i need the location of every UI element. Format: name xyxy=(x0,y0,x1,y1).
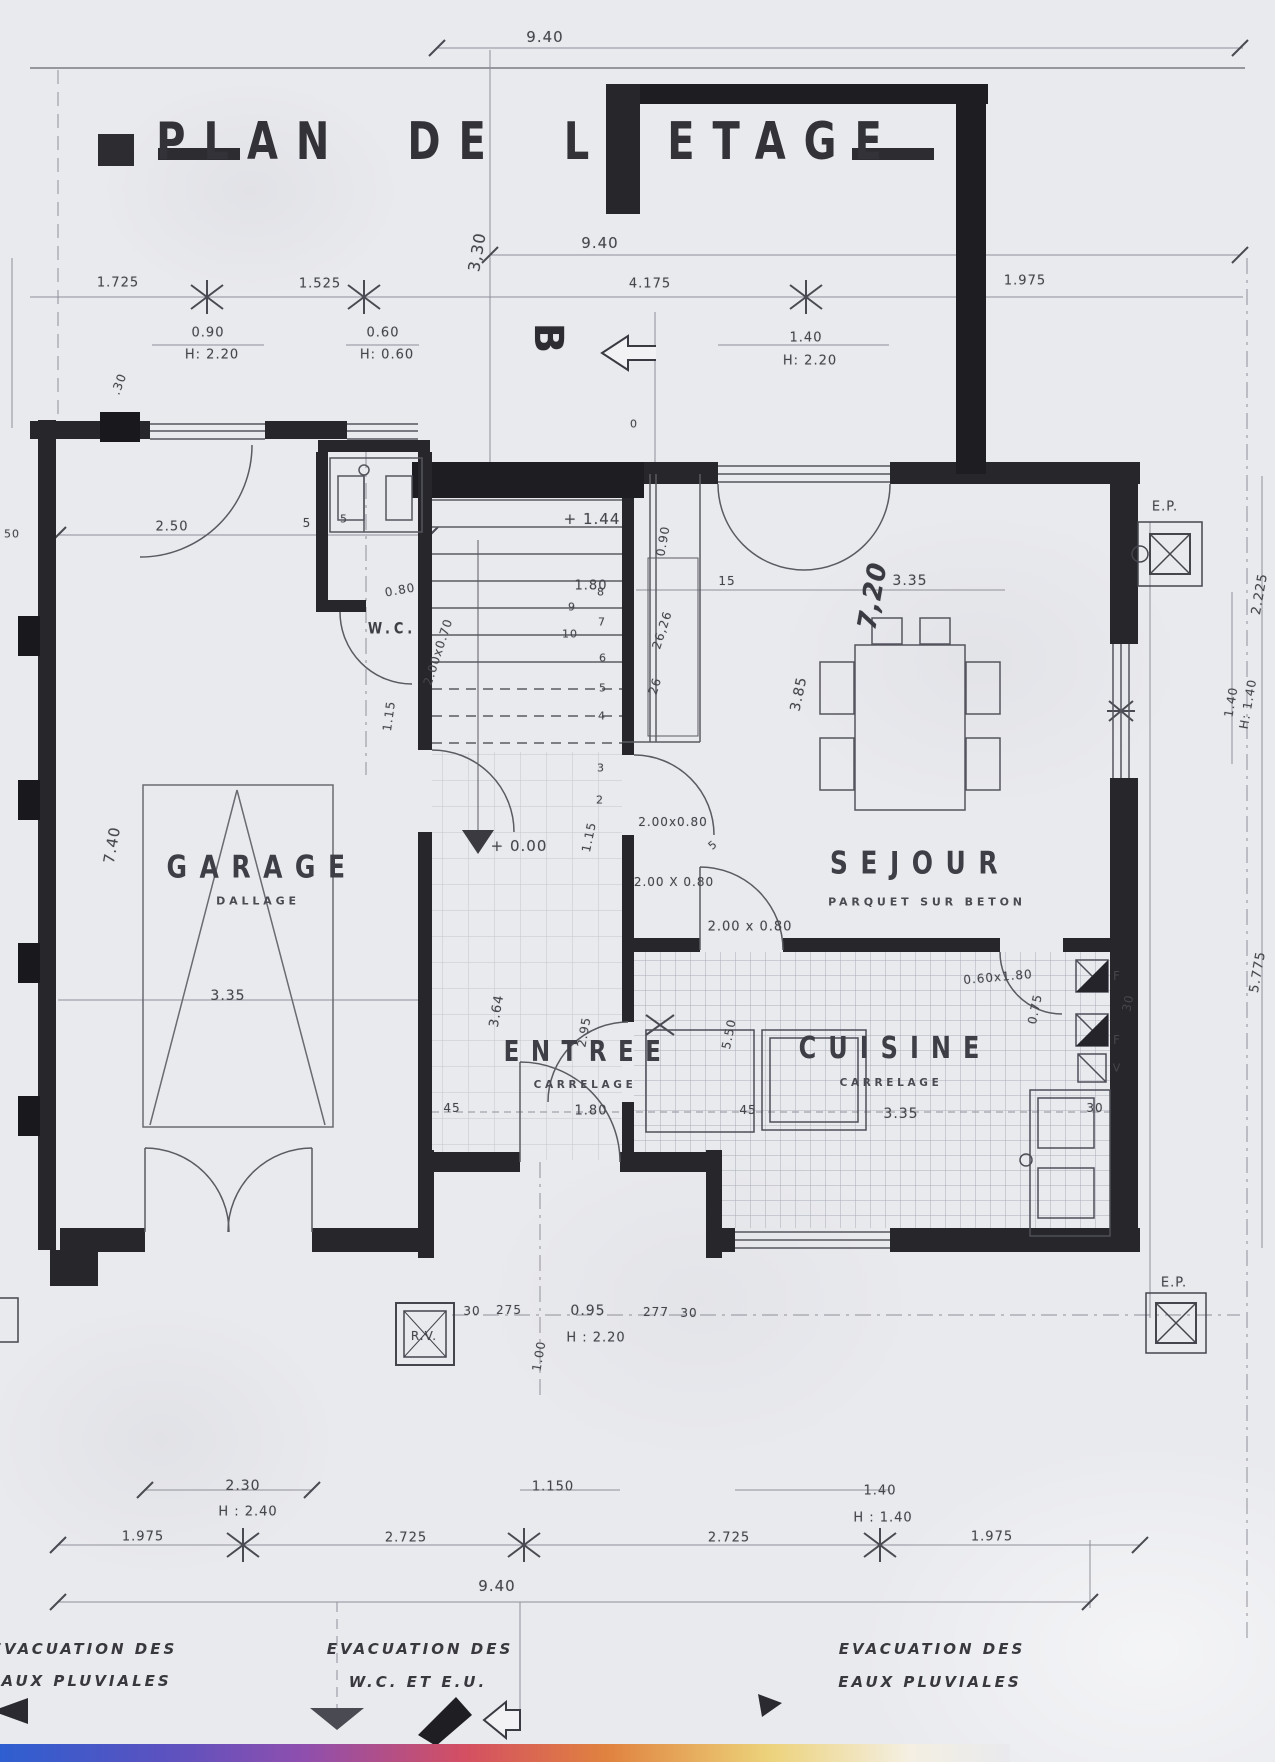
dim-label: 275 xyxy=(496,1303,522,1317)
dim-label: 1.15 xyxy=(579,821,599,854)
dim-label: 1.80 xyxy=(575,1104,608,1119)
dim-label: 1.40 xyxy=(790,331,823,346)
rv-label: R.V. xyxy=(411,1329,437,1343)
dim-label: 9.40 xyxy=(581,234,618,252)
dim-label: 2.00x0.70 xyxy=(421,617,456,687)
dim-label: 0 xyxy=(630,418,638,431)
dim-label: 2.00 X 0.80 xyxy=(634,875,714,889)
dim-label: 2.225 xyxy=(1249,572,1271,616)
dim-label: 30 xyxy=(680,1306,697,1320)
stair-step-number: 4 xyxy=(598,710,606,723)
dim-label: H : 1.40 xyxy=(853,1511,912,1526)
dim-label: 3.64 xyxy=(487,993,507,1028)
dim-label: 3.35 xyxy=(883,1106,918,1122)
dim-label: 1.150 xyxy=(532,1480,574,1495)
dim-label: 26 xyxy=(646,676,665,697)
stair-step-number: 5 xyxy=(599,682,607,695)
rain-outlet-label: E.P. xyxy=(1161,1276,1187,1291)
dim-label: 2.50 xyxy=(156,520,189,535)
flue-marker: F xyxy=(1113,1033,1121,1047)
dim-label: 9.40 xyxy=(478,1577,515,1595)
dim-label: 5 xyxy=(706,837,720,852)
dim-label: 9.40 xyxy=(526,28,563,46)
dim-label: H: 2.20 xyxy=(783,354,837,369)
dim-label: 45 xyxy=(443,1101,460,1115)
dim-label: 1.40 xyxy=(1221,686,1240,719)
dim-label: 4.175 xyxy=(629,277,671,292)
dim-label: 50 xyxy=(4,528,20,541)
dim-label: 26,26 xyxy=(649,609,674,651)
dim-label: 1.525 xyxy=(299,277,341,292)
dim-label: 1.975 xyxy=(122,1530,164,1545)
dim-label: H : 2.40 xyxy=(218,1505,277,1520)
dim-label: 30 xyxy=(1086,1101,1103,1115)
floor-plan-page: PLAN DE L ETAGE GARAGE DALLAGE W.C. ENTR… xyxy=(0,0,1275,1762)
stair-step-number: 2 xyxy=(596,794,604,807)
dim-label: 0.60x1.80 xyxy=(963,967,1034,987)
dim-label: 0.80 xyxy=(384,580,417,599)
stair-step-number: 8 xyxy=(597,586,605,599)
stair-step-number: 7 xyxy=(598,616,606,629)
dim-label: 45 xyxy=(739,1103,756,1117)
dim-label: H : 2.20 xyxy=(566,1331,625,1346)
dim-label: .30 xyxy=(109,371,130,397)
flue-marker: F xyxy=(1113,969,1121,983)
dim-label: 1.40 xyxy=(864,1484,897,1499)
upper-wall-stub xyxy=(606,84,640,214)
dim-label: 2.95 xyxy=(574,1016,593,1049)
stair-step-number: 6 xyxy=(599,652,607,665)
dim-label: 3.85 xyxy=(788,675,811,713)
level-upper: + 1.44 xyxy=(564,510,621,528)
dim-label: 1.975 xyxy=(1004,274,1046,289)
dim-label: 277 xyxy=(643,1305,669,1319)
dim-label: 5 xyxy=(303,516,312,530)
dim-label: 2.725 xyxy=(385,1531,427,1546)
vent-marker: V xyxy=(1113,1062,1122,1075)
dim-label: 1.725 xyxy=(97,276,139,291)
stair-step-number: 9 xyxy=(568,601,576,614)
dim-label: 30 xyxy=(1119,993,1136,1013)
dim-label: 15 xyxy=(718,574,735,588)
dim-label: 0.90 xyxy=(192,326,225,341)
section-marker-b: B xyxy=(525,323,571,354)
dim-label: 5.775 xyxy=(1247,950,1269,994)
dim-label: 1.15 xyxy=(380,700,398,732)
scanner-color-strip xyxy=(0,1744,1010,1762)
rain-outlet-label: E.P. xyxy=(1152,500,1178,515)
dim-label: 1.975 xyxy=(971,1530,1013,1545)
dim-label: 0.95 xyxy=(570,1303,605,1319)
dim-label: 1.00 xyxy=(529,1340,548,1373)
dim-label: 3,30 xyxy=(464,231,490,273)
dim-label: 2.725 xyxy=(708,1531,750,1546)
dim-label: 3.35 xyxy=(892,573,927,589)
dim-label: 30 xyxy=(463,1304,480,1318)
dim-label: 2.00x0.80 xyxy=(638,815,708,829)
dim-label: H: 0.60 xyxy=(360,348,414,363)
dim-label: 0.90 xyxy=(653,525,672,558)
dim-label: 2.00 x 0.80 xyxy=(708,920,793,935)
dimension-labels: 9.409.403,301.7251.5254.1751.9750.90H: 2… xyxy=(0,0,1275,1762)
dim-label: 3.35 xyxy=(210,988,245,1004)
dim-label: 0.75 xyxy=(1025,993,1045,1026)
dim-label: 7.40 xyxy=(100,825,124,865)
dim-label: 2.30 xyxy=(225,1478,260,1494)
stair-step-number: 3 xyxy=(597,762,605,775)
level-ground: + 0.00 xyxy=(491,837,548,855)
dim-label: H: 2.20 xyxy=(185,348,239,363)
dim-label: 5 xyxy=(340,513,348,526)
dim-label: H: 1.40 xyxy=(1237,678,1260,730)
dim-label: 7,20 xyxy=(852,560,893,632)
stair-step-number: 10 xyxy=(562,628,578,641)
dim-label: 5.50 xyxy=(719,1018,739,1051)
dim-label: 0.60 xyxy=(367,326,400,341)
